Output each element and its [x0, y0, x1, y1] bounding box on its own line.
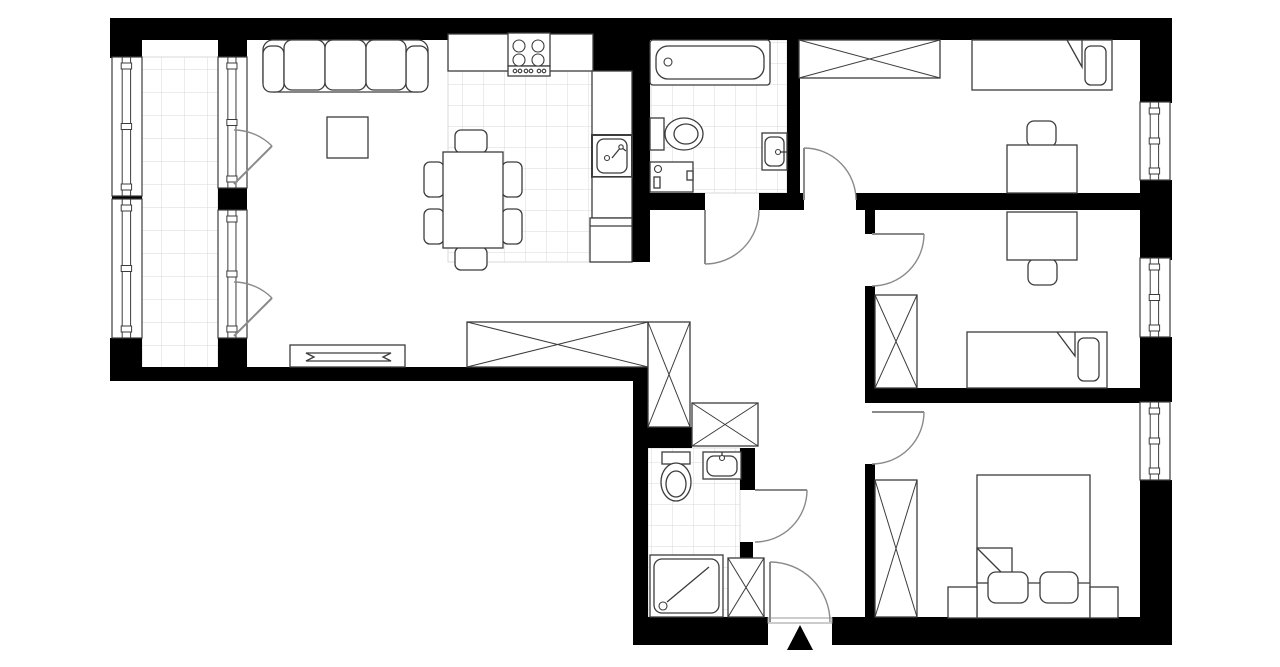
- desk-2-chair: [1028, 259, 1057, 285]
- window-tick: [227, 271, 237, 277]
- kitchen-sink-basin: [597, 139, 627, 173]
- window-tick: [1149, 264, 1159, 270]
- stove-burner: [513, 54, 525, 66]
- window-tick: [121, 124, 131, 130]
- toilet2-bowl-inner: [666, 471, 686, 497]
- window-tick: [121, 63, 131, 69]
- bedroom1-window: [1140, 102, 1170, 180]
- basin-2-faucet: [720, 456, 725, 461]
- stove-knob: [529, 69, 533, 73]
- kitchen-counter-seg: [592, 177, 632, 218]
- stove-knob: [513, 69, 517, 73]
- sink-drain: [605, 156, 610, 161]
- sofa-armrest: [406, 46, 428, 92]
- wall-right-seg4: [1140, 480, 1172, 645]
- stove-burner: [513, 40, 525, 52]
- dining-chair: [455, 130, 487, 153]
- washer-drawer: [654, 177, 660, 188]
- wardrobe-bedroom1: [799, 40, 940, 78]
- window-tick: [1149, 408, 1159, 414]
- sofa-cushion: [366, 40, 406, 90]
- window-tick: [1149, 168, 1159, 174]
- sofa-armrest: [263, 46, 284, 92]
- balcony-door-window-2: [218, 210, 247, 338]
- window-tick: [1149, 325, 1159, 331]
- bedroom3-window: [1140, 402, 1170, 480]
- window-tick: [121, 326, 131, 332]
- entrance-door: [770, 562, 830, 622]
- window-tick: [227, 63, 237, 69]
- bedroom1-door-swing-arc: [804, 148, 856, 200]
- stove-knob: [524, 69, 528, 73]
- window-tick: [1149, 438, 1159, 444]
- bedroom2-door: [872, 234, 924, 286]
- bedroom2-door-swing-arc: [872, 234, 924, 286]
- dining-chair: [424, 162, 444, 197]
- window-tick: [227, 216, 237, 222]
- balcony-window-1: [112, 57, 142, 196]
- kitchen-faucet-base: [619, 145, 623, 149]
- wall-bottom-east: [832, 617, 1172, 645]
- balcony-window-2: [112, 199, 142, 338]
- desk-1: [1007, 145, 1077, 193]
- bed-2-pillow: [1078, 338, 1099, 381]
- toilet-bowl-inner: [674, 124, 698, 144]
- layer-markers: [787, 625, 813, 650]
- wall-right-seg3: [1140, 337, 1172, 402]
- washer-handle: [687, 171, 693, 180]
- basin-1-faucet: [776, 150, 781, 155]
- bedroom3-door-swing-arc: [872, 412, 924, 464]
- toilet-tank: [650, 118, 664, 150]
- wall-hall-north-2: [759, 193, 804, 210]
- nightstand: [1090, 587, 1118, 618]
- wall-kitchen-bath: [632, 40, 650, 262]
- cabinet-entry: [728, 558, 764, 617]
- wardrobe-living: [467, 322, 648, 367]
- bedroom3-door: [872, 412, 924, 464]
- bedroom2-window: [1140, 258, 1170, 337]
- wall-balcony-left-top: [110, 40, 142, 58]
- wall-bedroom2-bottom: [875, 388, 1140, 403]
- wall-hall-east-c: [865, 464, 875, 619]
- wall-bedroom1-bottom: [856, 193, 1140, 210]
- floor-plan: [0, 0, 1280, 667]
- tv: [306, 353, 391, 361]
- entrance-arrow: [787, 625, 813, 650]
- bathroom1-door-swing-arc: [705, 210, 759, 264]
- wall-living-bottom: [110, 367, 648, 381]
- coffee-table: [327, 117, 368, 158]
- window-tick: [1149, 295, 1159, 301]
- dining-chair: [455, 247, 487, 270]
- wardrobe-bedroom2: [875, 295, 917, 388]
- bedroom1-door: [804, 148, 856, 200]
- wall-hall-east-a: [865, 210, 875, 234]
- stove-knob: [542, 69, 546, 73]
- stove-burner: [532, 54, 544, 66]
- balcony-door-window-1: [218, 57, 247, 188]
- nightstand: [948, 587, 977, 618]
- bed-3-pillow: [1040, 572, 1078, 603]
- bathroom1-door: [705, 210, 759, 264]
- wall-hall-east-b: [865, 286, 875, 403]
- sofa-cushion: [284, 40, 325, 90]
- bathroom2-door: [755, 490, 807, 542]
- window-tick: [227, 120, 237, 126]
- sofa-cushion: [325, 40, 366, 90]
- stove-knob: [537, 69, 541, 73]
- bathtub-drain: [664, 58, 672, 66]
- bathroom2-door-swing-arc: [755, 490, 807, 542]
- wall-bath1-east: [787, 20, 800, 195]
- window-tick: [121, 205, 131, 211]
- stove-knob: [518, 69, 522, 73]
- wardrobe-hall: [648, 322, 690, 427]
- wardrobe-bedroom3: [875, 480, 917, 617]
- window-tick: [227, 326, 237, 332]
- window-tick: [227, 176, 237, 182]
- window-tick: [1149, 108, 1159, 114]
- entrance-door-swing-arc: [770, 562, 830, 622]
- toilet2-tank: [662, 452, 690, 464]
- wall-balcony-inner-mid: [218, 188, 247, 210]
- window-tick: [121, 266, 131, 272]
- dining-chair: [424, 209, 444, 244]
- wall-hall-north-1: [632, 193, 705, 210]
- entrance-threshold: [768, 618, 832, 623]
- bed-3-pillow: [988, 572, 1028, 603]
- washer-knob: [655, 166, 662, 173]
- fridge: [590, 218, 632, 262]
- wardrobe-hall-2: [692, 403, 758, 446]
- floor-plan-svg: [0, 0, 1280, 667]
- wall-right-seg2: [1140, 180, 1172, 260]
- desk-1-chair: [1027, 121, 1056, 147]
- bed-1-pillow: [1085, 46, 1106, 85]
- desk-2: [1007, 212, 1077, 260]
- balcony-tiles: [142, 57, 218, 368]
- window-tick: [1149, 138, 1159, 144]
- shower-drain: [659, 602, 667, 610]
- kitchen-counter-right: [592, 71, 632, 135]
- stove-burner: [532, 40, 544, 52]
- wall-bath2-east-top: [740, 448, 755, 490]
- wall-hall-west-step: [633, 367, 648, 617]
- dining-chair: [502, 162, 522, 197]
- wall-right-seg1: [1140, 40, 1172, 103]
- dining-chair: [502, 209, 522, 244]
- dining-table: [443, 152, 503, 248]
- window-tick: [121, 184, 131, 190]
- window-tick: [1149, 468, 1159, 474]
- wall-bottom-west: [633, 617, 768, 645]
- wall-bath2-top: [633, 427, 692, 448]
- wall-balcony-inner-top: [218, 40, 247, 58]
